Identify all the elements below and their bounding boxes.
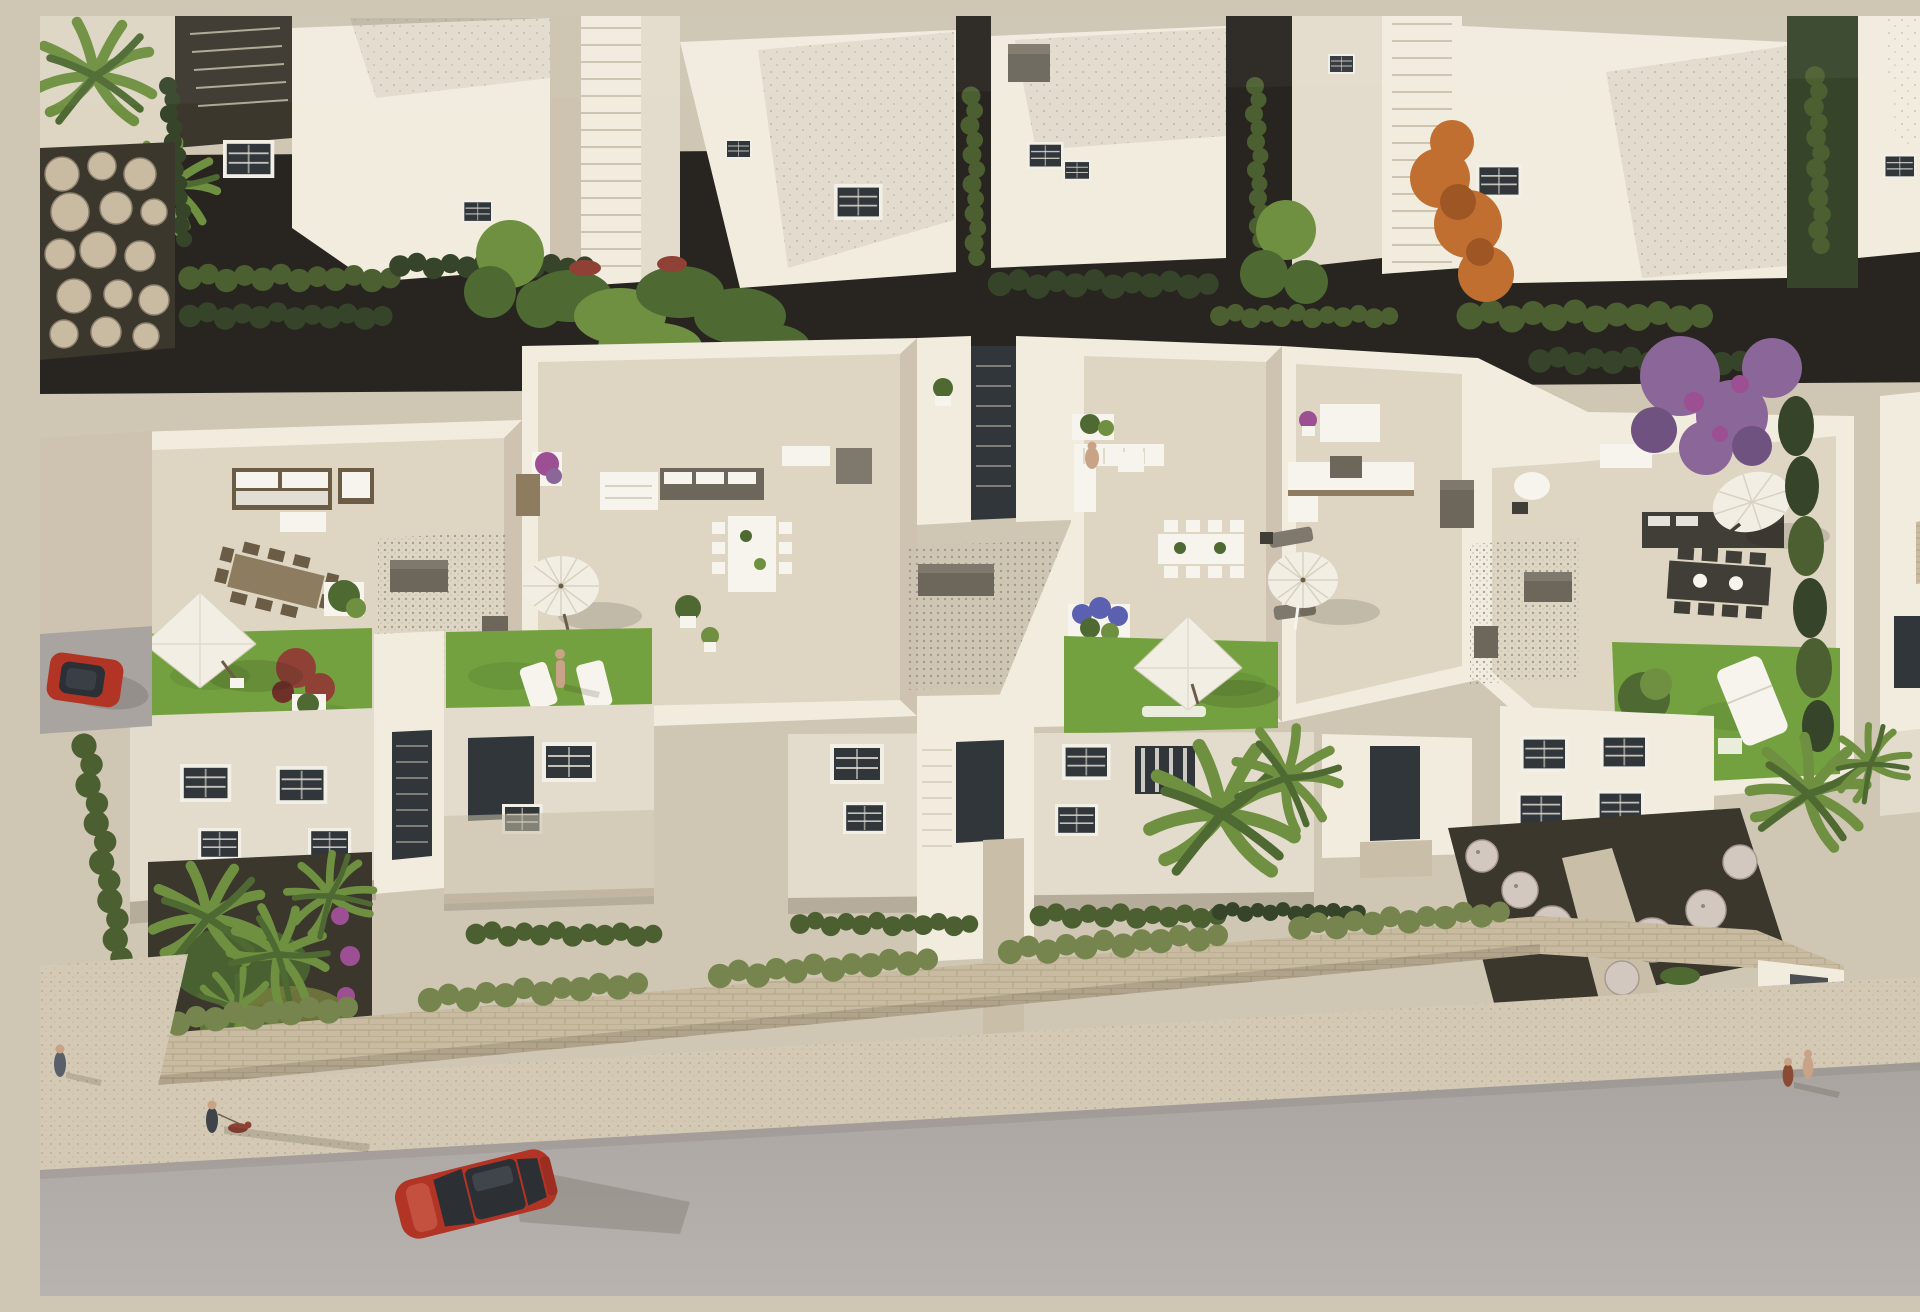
neighbor-building-right [1880, 388, 1920, 816]
terrace-3b [1260, 346, 1478, 722]
stairwell-towers [917, 336, 1071, 525]
scene-canvas [40, 16, 1920, 1296]
boulder-wall [40, 142, 175, 360]
stair-tower-1 [374, 631, 444, 894]
house-2-facade [444, 704, 654, 911]
aerial-render: Aerial 3D rendering of a modern white to… [40, 16, 1920, 1296]
gravel-court-4 [1470, 538, 1580, 684]
